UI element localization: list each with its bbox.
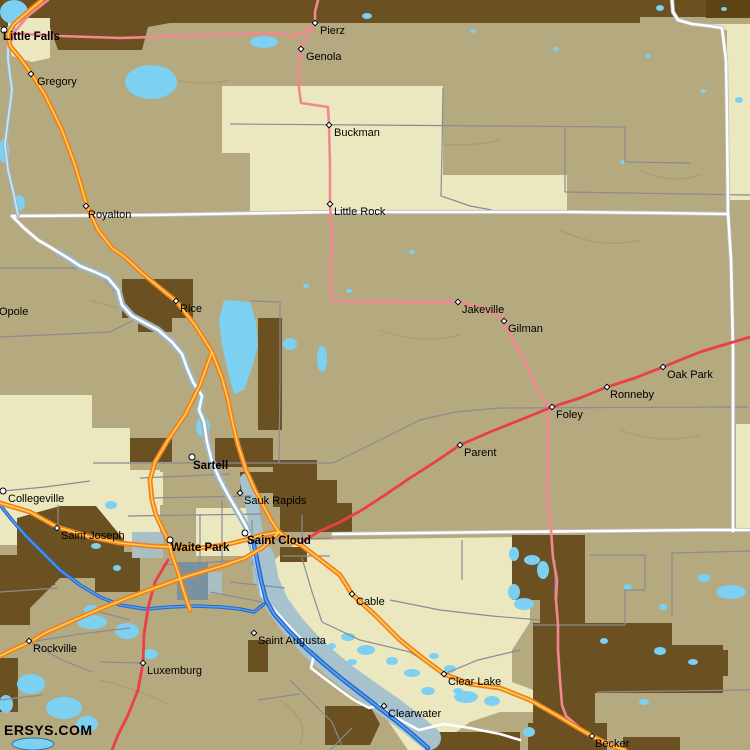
- city-label-clear-lake: Clear Lake: [448, 677, 501, 688]
- city-label-pierz: Pierz: [320, 26, 345, 37]
- city-label-becker: Becker: [595, 739, 629, 750]
- city-marker-little-rock: [326, 200, 333, 207]
- city-label-jakeville: Jakeville: [462, 305, 504, 316]
- city-marker-rice: [172, 297, 179, 304]
- city-label-opole: Opole: [0, 307, 28, 318]
- city-marker-buckman: [325, 121, 332, 128]
- city-label-saint-cloud: Saint Cloud: [247, 536, 311, 547]
- city-label-luxemburg: Luxemburg: [147, 666, 202, 677]
- city-label-sauk-rapids: Sauk Rapids: [244, 496, 306, 507]
- city-label-little-falls: Little Falls: [3, 32, 60, 43]
- city-marker-clearwater: [380, 702, 387, 709]
- city-marker-cable: [348, 590, 355, 597]
- city-label-cable: Cable: [356, 597, 385, 608]
- city-label-saint-augusta: Saint Augusta: [258, 636, 326, 647]
- city-label-waite-park: Waite Park: [171, 543, 229, 554]
- city-label-gilman: Gilman: [508, 324, 543, 335]
- city-marker-rockville: [25, 637, 32, 644]
- city-marker-parent: [456, 441, 463, 448]
- city-marker-luxemburg: [139, 659, 146, 666]
- city-marker-gregory: [27, 70, 34, 77]
- city-marker-pierz: [311, 19, 318, 26]
- city-marker-jakeville: [454, 298, 461, 305]
- city-marker-sauk-rapids: [236, 489, 243, 496]
- city-marker-oak-park: [659, 363, 666, 370]
- city-label-clearwater: Clearwater: [388, 709, 441, 720]
- city-marker-saint-augusta: [250, 629, 257, 636]
- map-canvas: Little FallsGregoryPierzGenolaBuckmanRoy…: [0, 0, 750, 750]
- city-label-ronneby: Ronneby: [610, 390, 654, 401]
- watermark: ERSYS.COM: [4, 722, 93, 738]
- city-labels-layer: Little FallsGregoryPierzGenolaBuckmanRoy…: [0, 0, 750, 750]
- city-label-little-rock: Little Rock: [334, 207, 385, 218]
- city-label-oak-park: Oak Park: [667, 370, 713, 381]
- city-label-sartell: Sartell: [193, 461, 228, 472]
- city-marker-foley: [548, 403, 555, 410]
- city-label-rockville: Rockville: [33, 644, 77, 655]
- city-marker-gilman: [500, 317, 507, 324]
- city-label-foley: Foley: [556, 410, 583, 421]
- city-label-genola: Genola: [306, 52, 341, 63]
- city-label-gregory: Gregory: [37, 77, 77, 88]
- city-marker-saint-joseph: [53, 524, 60, 531]
- city-label-parent: Parent: [464, 448, 496, 459]
- city-marker-genola: [297, 45, 304, 52]
- city-label-buckman: Buckman: [334, 128, 380, 139]
- city-label-rice: Rice: [180, 304, 202, 315]
- city-label-collegeville: Collegeville: [8, 494, 64, 505]
- city-marker-collegeville: [0, 488, 7, 495]
- city-label-saint-joseph: Saint Joseph: [61, 531, 125, 542]
- city-marker-clear-lake: [440, 670, 447, 677]
- city-label-royalton: Royalton: [88, 210, 131, 221]
